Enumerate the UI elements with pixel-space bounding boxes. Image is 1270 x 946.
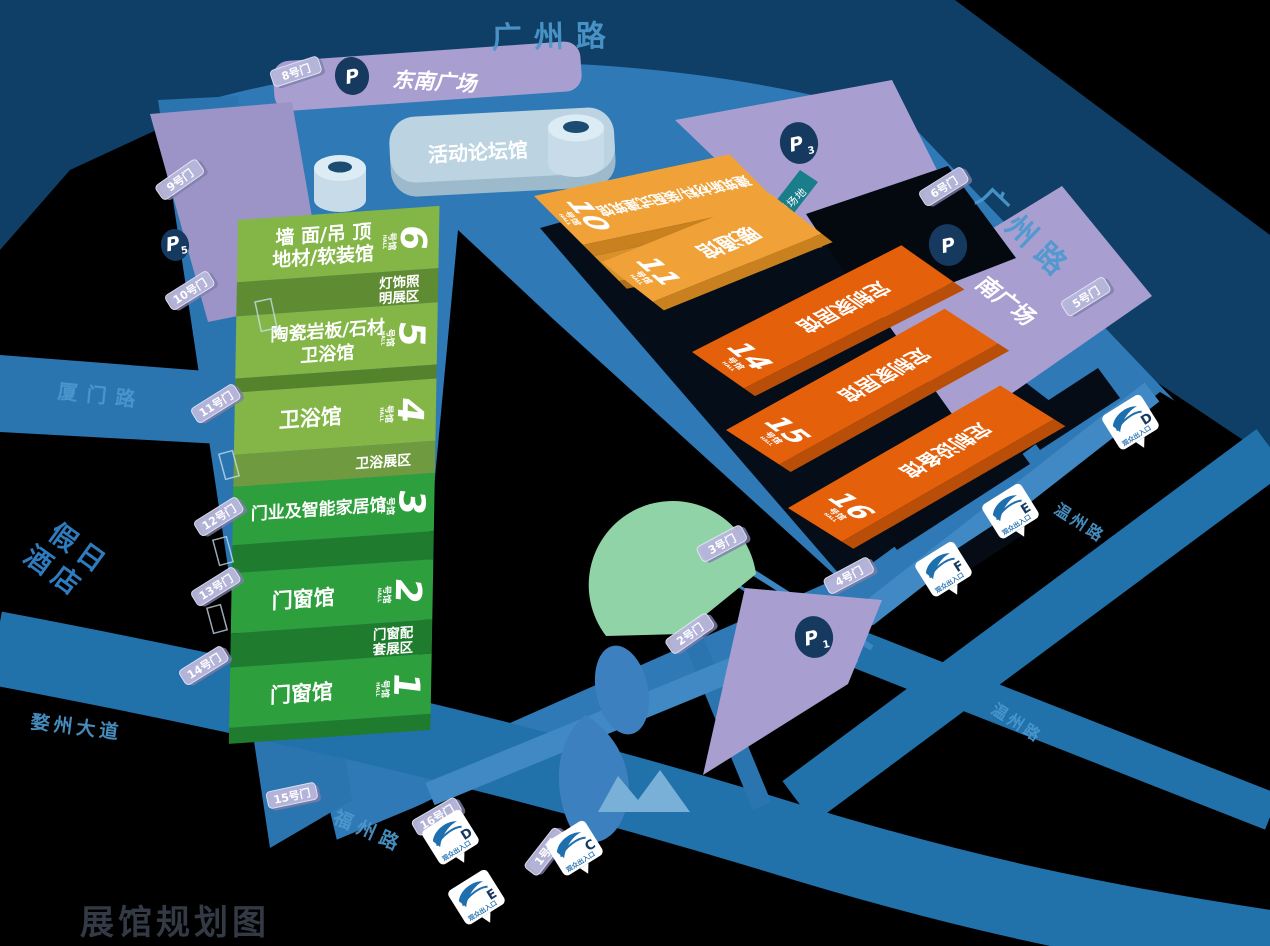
- exhibition-map: 东南广场 南广场 消防救援场地 活动论坛馆 9 号馆 HALL 墙 面/吊 顶 …: [0, 0, 1270, 946]
- hall-6-sfx-en: HALL: [381, 234, 387, 250]
- hall-1-sfx-en: HALL: [374, 682, 380, 698]
- hall-3-sfx-en: HALL: [379, 499, 385, 515]
- hall-4-sfx-en: HALL: [378, 407, 384, 423]
- hall-5-sfx-en: HALL: [379, 331, 385, 347]
- tower-cylinder-west: [314, 155, 366, 212]
- tower-cylinder-east: [548, 115, 604, 178]
- southeast-plaza-label: 东南广场: [392, 68, 479, 96]
- hall-2-num: 2: [387, 577, 429, 605]
- hall-5-name-2: 卫浴馆: [300, 341, 354, 367]
- hall-4-name: 卫浴馆: [279, 403, 342, 432]
- hall-3-num: 3: [390, 489, 432, 517]
- map-canvas: 东南广场 南广场 消防救援场地 活动论坛馆 9 号馆 HALL 墙 面/吊 顶 …: [0, 0, 1270, 946]
- green-halls-group: 墙 面/吊 顶 地材/软装馆 6 号馆 HALL 灯饰照 明展区 陶瓷岩板/石材…: [229, 206, 440, 744]
- hall-5-num: 5: [390, 320, 432, 348]
- hall-2-sfx-en: HALL: [376, 588, 382, 604]
- guangzhou-road-top-label: 广州路: [492, 19, 619, 56]
- hall-6-num: 6: [392, 224, 434, 252]
- cylinder-hole: [328, 162, 352, 173]
- hall-2-name: 门窗馆: [271, 584, 334, 613]
- hall-1-num: 1: [385, 671, 427, 699]
- cylinder-hole: [563, 121, 589, 133]
- hall-4-num: 4: [389, 395, 431, 424]
- map-title: 展馆规划图: [80, 903, 270, 943]
- hall-1-name: 门窗馆: [270, 679, 333, 708]
